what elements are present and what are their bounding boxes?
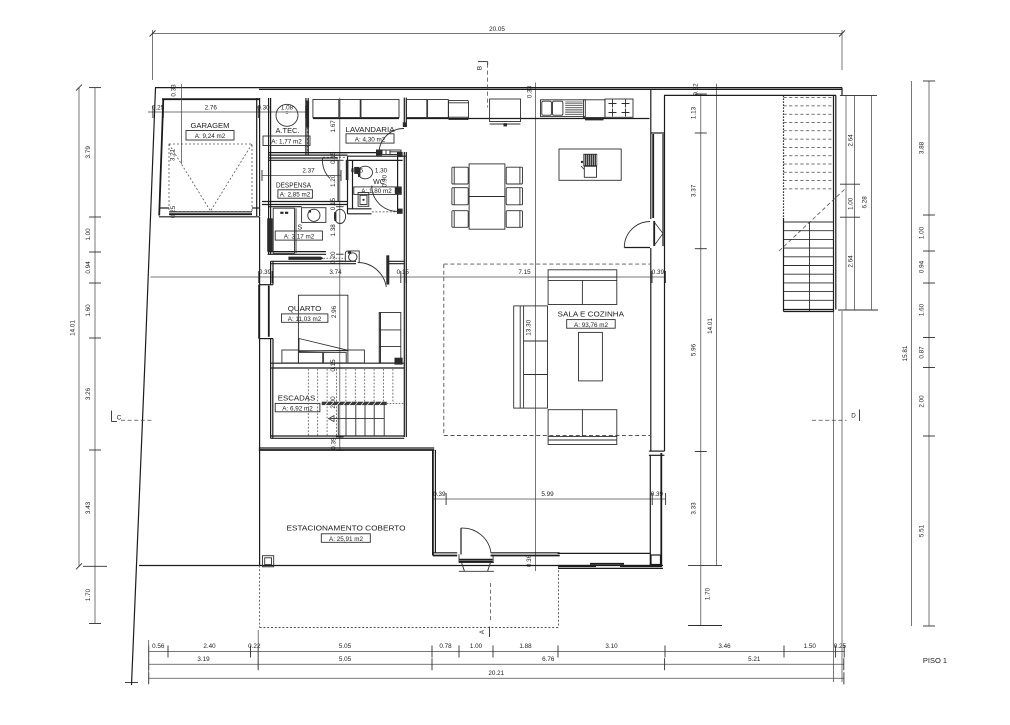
svg-text:1.60: 1.60	[85, 304, 92, 317]
svg-text:3.26: 3.26	[85, 387, 92, 400]
svg-text:0.25: 0.25	[834, 643, 847, 650]
svg-text:20.05: 20.05	[489, 26, 505, 33]
svg-text:1.67: 1.67	[330, 120, 337, 133]
svg-text:5.96: 5.96	[691, 343, 698, 356]
svg-text:WC: WC	[373, 179, 385, 186]
svg-text:5.21: 5.21	[748, 656, 761, 663]
svg-text:3.88: 3.88	[919, 141, 926, 154]
svg-text:=: =	[286, 111, 289, 117]
svg-text:ESCADAS: ESCADAS	[278, 396, 316, 403]
svg-text:A: 3,17 m2: A: 3,17 m2	[284, 234, 315, 241]
svg-text:GARAGEM: GARAGEM	[191, 123, 230, 130]
svg-text:1.00: 1.00	[470, 643, 483, 650]
svg-text:2.96: 2.96	[331, 305, 338, 318]
svg-text:A.TEC.: A.TEC.	[276, 128, 300, 135]
svg-text:3.74: 3.74	[329, 269, 342, 276]
svg-text:7.15: 7.15	[518, 269, 531, 276]
svg-text:C: C	[117, 415, 122, 422]
svg-text:2.00: 2.00	[919, 395, 926, 408]
svg-text:5.05: 5.05	[339, 656, 352, 663]
svg-text:0.15: 0.15	[397, 269, 410, 276]
svg-text:2.64: 2.64	[847, 255, 854, 268]
svg-text:SALA E COZINHA: SALA E COZINHA	[558, 311, 625, 318]
svg-text:1.88: 1.88	[519, 643, 532, 650]
svg-text:A: 1,80 m2: A: 1,80 m2	[361, 188, 392, 195]
svg-text:A: 25,91 m2: A: 25,91 m2	[329, 536, 363, 543]
svg-text:1.38: 1.38	[330, 224, 337, 237]
svg-text:B: B	[477, 66, 484, 70]
svg-text:6.76: 6.76	[542, 656, 555, 663]
svg-text:0.87: 0.87	[919, 346, 926, 359]
svg-text:0.33: 0.33	[171, 84, 178, 97]
svg-text:0.94: 0.94	[85, 261, 92, 274]
svg-text:A: 2,85 m2: A: 2,85 m2	[280, 192, 311, 199]
svg-text:0.39: 0.39	[259, 269, 272, 276]
svg-text:1.20: 1.20	[330, 174, 337, 187]
svg-text:0.15: 0.15	[330, 359, 337, 372]
svg-text:1.70: 1.70	[705, 587, 712, 600]
svg-text:2.76: 2.76	[205, 105, 218, 112]
svg-text:3.37: 3.37	[691, 184, 698, 197]
svg-text:0.78: 0.78	[439, 643, 452, 650]
svg-text:QUARTO: QUARTO	[288, 306, 322, 313]
svg-text:1.00: 1.00	[847, 197, 854, 210]
svg-text:2.40: 2.40	[203, 643, 216, 650]
svg-text:A: 9,24 m2: A: 9,24 m2	[195, 133, 226, 140]
svg-text:DESPENSA: DESPENSA	[276, 183, 311, 190]
svg-text:5.99: 5.99	[541, 491, 554, 498]
svg-text:LAVANDARIA: LAVANDARIA	[346, 127, 395, 134]
svg-text:1.70: 1.70	[85, 588, 92, 601]
svg-text:0.22: 0.22	[248, 643, 261, 650]
svg-text:14.01: 14.01	[707, 318, 714, 334]
svg-text:PISO 1: PISO 1	[923, 656, 947, 665]
svg-text:0.94: 0.94	[919, 260, 926, 273]
svg-text:0.39: 0.39	[652, 269, 665, 276]
svg-text:13.30: 13.30	[526, 319, 533, 335]
svg-text:D: D	[851, 413, 856, 420]
svg-text:1.00: 1.00	[919, 226, 926, 239]
svg-text:20.21: 20.21	[488, 670, 504, 677]
svg-text:S: S	[297, 225, 302, 232]
svg-text:1.00: 1.00	[85, 228, 92, 241]
svg-text:0.56: 0.56	[152, 643, 165, 650]
svg-text:6.28: 6.28	[862, 196, 869, 209]
svg-text:1.50: 1.50	[804, 643, 817, 650]
svg-text:1.60: 1.60	[919, 303, 926, 316]
svg-text:0.15: 0.15	[330, 197, 337, 210]
svg-text:5.51: 5.51	[919, 524, 926, 537]
svg-text:ESTACIONAMENTO COBERTO: ESTACIONAMENTO COBERTO	[287, 526, 407, 533]
svg-text:2.64: 2.64	[847, 134, 854, 147]
svg-text:3.46: 3.46	[718, 643, 731, 650]
svg-text:A: 1,77 m2: A: 1,77 m2	[271, 139, 302, 146]
svg-text:1.30: 1.30	[375, 168, 388, 175]
svg-text:3.33: 3.33	[691, 502, 698, 515]
svg-text:5.05: 5.05	[339, 643, 352, 650]
svg-text:3.79: 3.79	[85, 146, 92, 159]
svg-text:14.01: 14.01	[70, 320, 77, 336]
svg-text:A: 11,03 m2: A: 11,03 m2	[288, 316, 322, 323]
svg-text:3.19: 3.19	[197, 656, 210, 663]
svg-text:15.81: 15.81	[902, 345, 909, 361]
svg-text:2.37: 2.37	[302, 168, 315, 175]
svg-text:A: 93,76 m2: A: 93,76 m2	[574, 322, 608, 329]
svg-text:3.10: 3.10	[605, 643, 618, 650]
svg-text:3.43: 3.43	[85, 501, 92, 514]
svg-text:1.13: 1.13	[691, 106, 698, 119]
